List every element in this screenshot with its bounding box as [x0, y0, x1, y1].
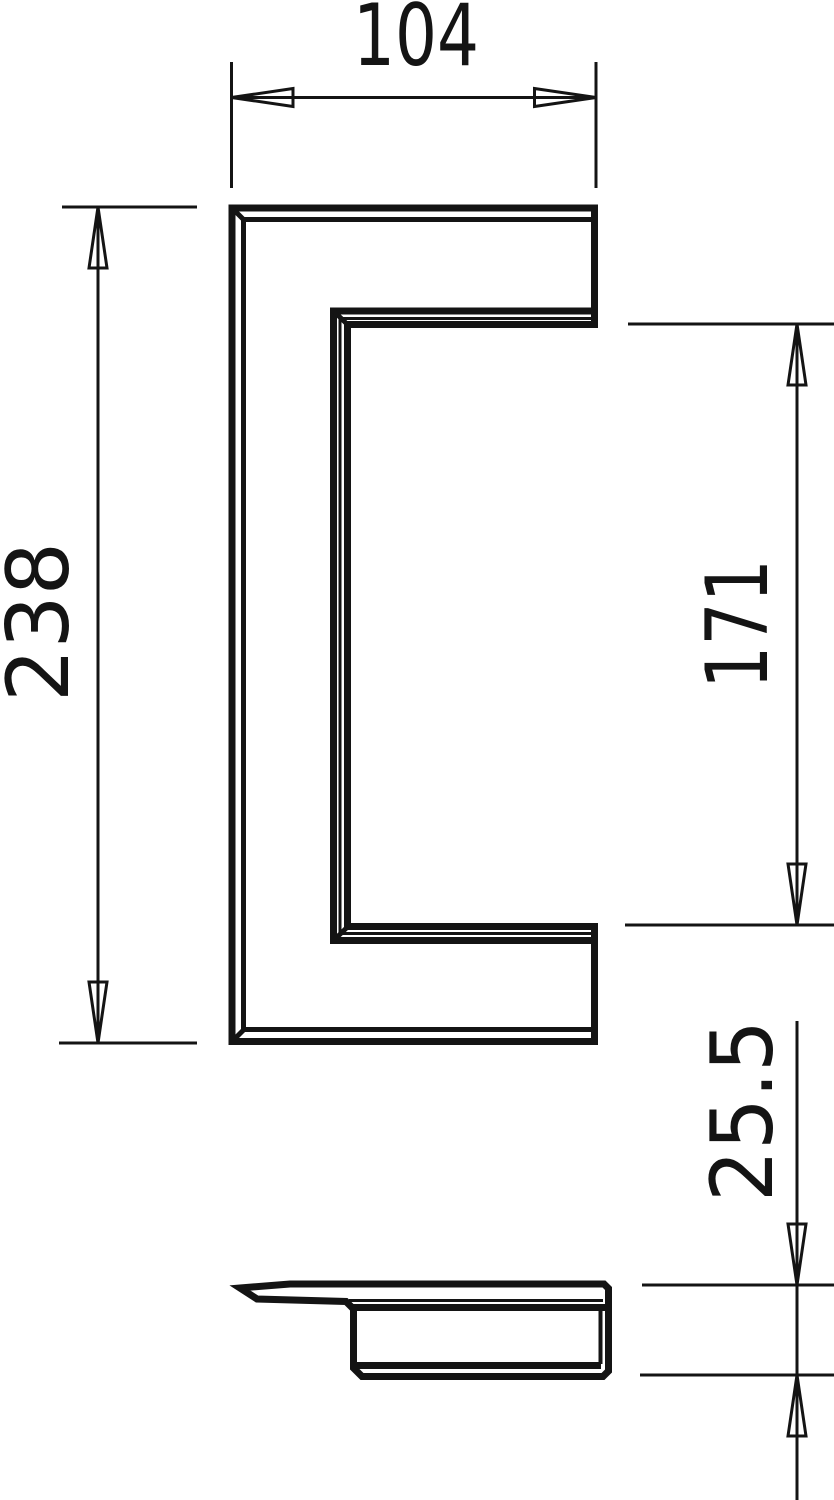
- dim-width-label: 104: [353, 0, 479, 86]
- dim-depth-extension-lines: [640, 1285, 834, 1375]
- dimension-opening: 171: [625, 324, 834, 925]
- front-view: [231, 207, 595, 1044]
- dimension-depth: 25.5: [640, 1020, 834, 1500]
- technical-drawing: 104 238 171 25.5: [0, 0, 834, 1500]
- technical-drawing-page: 104 238 171 25.5: [0, 0, 834, 1500]
- dimension-height: 238: [0, 207, 197, 1043]
- dim-height-label: 238: [0, 542, 89, 702]
- front-fold-contour: [244, 220, 595, 1030]
- dimension-width: 104: [232, 0, 597, 188]
- bottom-view: [240, 1284, 609, 1377]
- dim-opening-label: 171: [688, 559, 788, 689]
- front-outer-contour: [232, 208, 595, 1042]
- front-notch-fold-thin: [340, 319, 594, 934]
- dim-depth-label: 25.5: [693, 1020, 793, 1202]
- front-notch-fold-thick: [334, 311, 595, 941]
